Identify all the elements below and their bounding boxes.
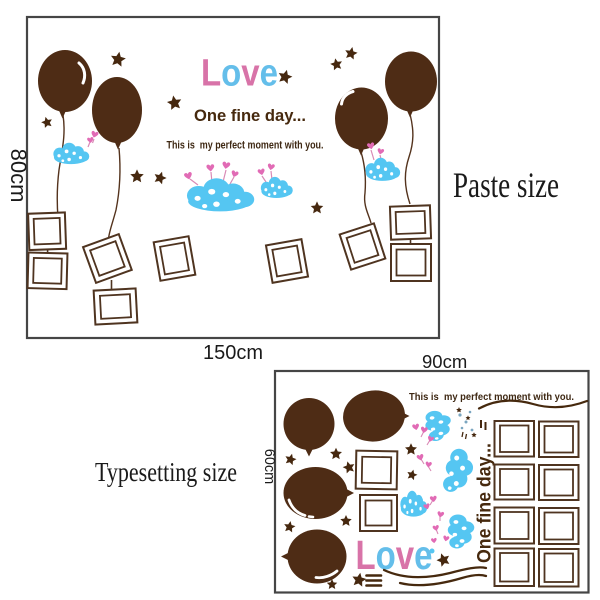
svg-text:Typesetting size: Typesetting size: [95, 456, 237, 487]
svg-text:Love: Love: [201, 53, 278, 95]
svg-text:150cm: 150cm: [203, 342, 263, 364]
svg-text:Love: Love: [356, 532, 433, 578]
svg-text:One fine day...: One fine day...: [475, 443, 496, 563]
svg-text:Paste size: Paste size: [453, 165, 559, 205]
svg-text:This is my perfect moment wit: This is my perfect moment with you.: [409, 391, 574, 403]
svg-text:This is my perfect moment wit: This is my perfect moment with you.: [167, 140, 324, 152]
svg-text:60cm: 60cm: [261, 449, 277, 484]
svg-text:One fine day...: One fine day...: [194, 106, 306, 125]
svg-text:90cm: 90cm: [422, 351, 467, 372]
svg-text:80cm: 80cm: [6, 149, 31, 203]
